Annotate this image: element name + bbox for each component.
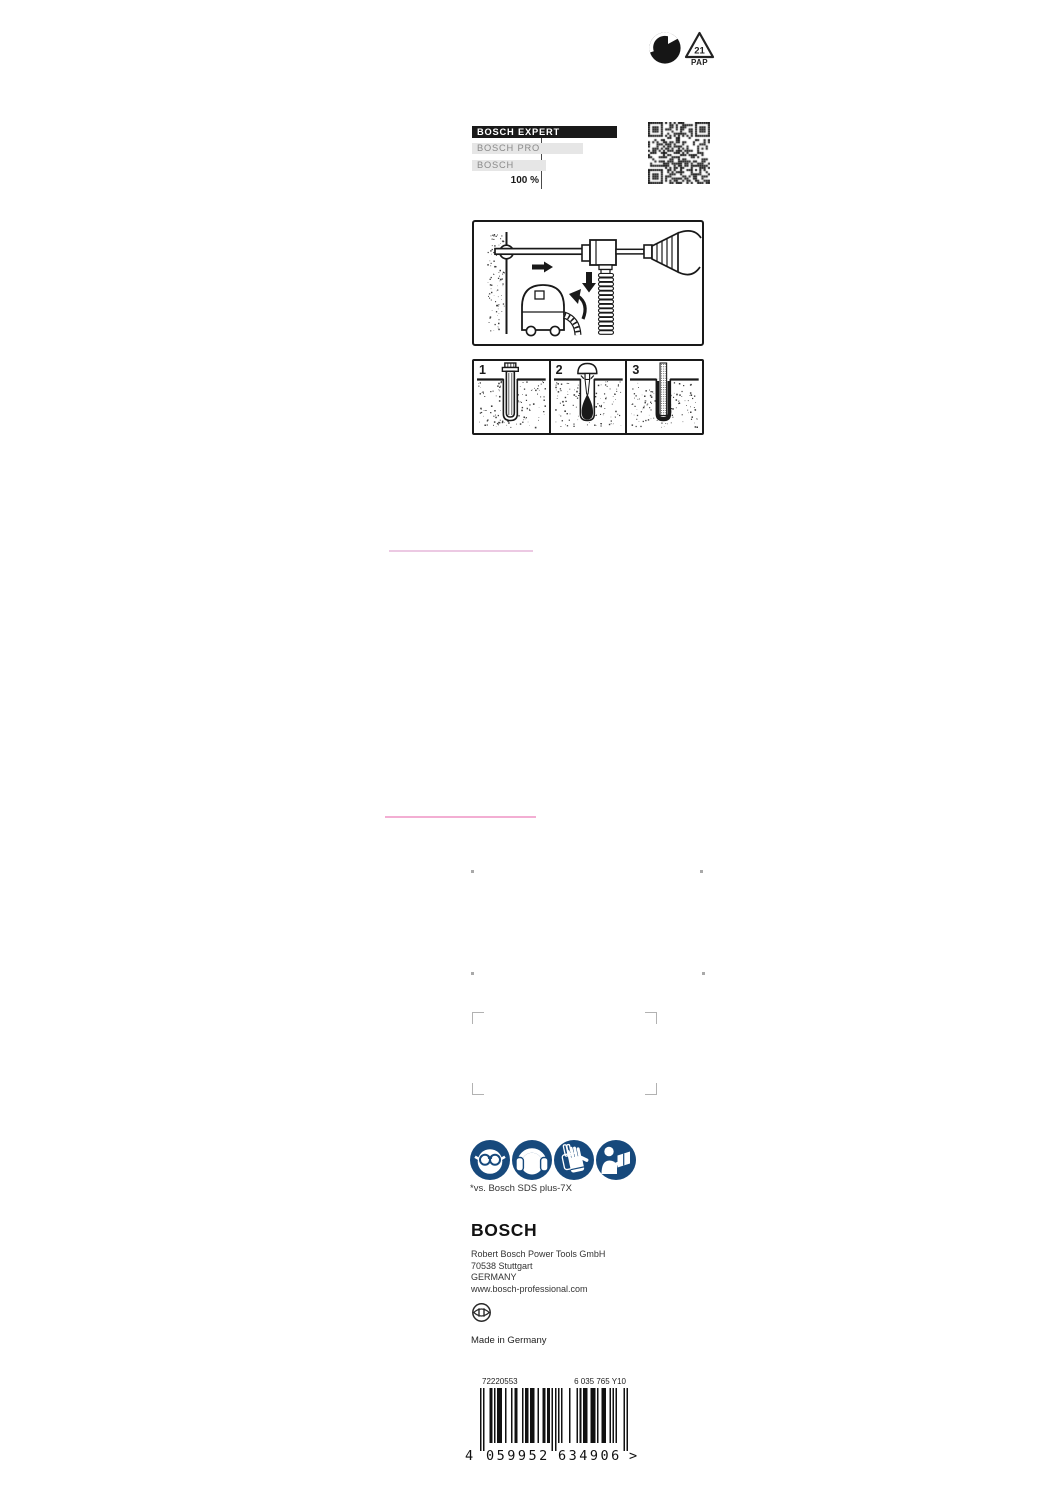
pap-21-recycling-icon: 21 PAP <box>683 30 716 67</box>
wear-ear-protection-icon <box>512 1140 552 1180</box>
step-number: 3 <box>632 363 639 377</box>
bosch-logo: BOSCH <box>471 1220 537 1241</box>
tier-bar-pro: BOSCH PRO <box>472 143 583 154</box>
anchor-bolt <box>506 371 514 417</box>
rotary-hammer-nose <box>652 233 678 272</box>
tier-bar-standard: BOSCH <box>472 160 546 171</box>
article-number: 72220553 <box>482 1377 518 1386</box>
die-cut-line-top <box>389 550 533 552</box>
green-dot-icon <box>648 31 682 65</box>
crop-mark-top-right <box>645 1012 657 1024</box>
ean-group2: 634906 <box>558 1448 622 1464</box>
extraction-adapter <box>590 240 616 265</box>
blow-out-pump <box>578 364 597 374</box>
installation-steps-panels: 1 2 <box>472 359 704 435</box>
step-panel-1: 1 <box>474 361 549 433</box>
step-panel-2: 2 <box>549 361 628 433</box>
extraction-hose <box>599 274 614 335</box>
address-line: GERMANY <box>471 1272 605 1284</box>
arrow-right-icon <box>532 262 553 273</box>
crop-mark-bottom-right <box>645 1083 657 1095</box>
pap-material-label: PAP <box>683 58 716 67</box>
tier-bar-expert: BOSCH EXPERT <box>472 126 617 138</box>
comparison-footnote: *vs. Bosch SDS plus-7X <box>470 1183 572 1194</box>
manufacturer-address: Robert Bosch Power Tools GmbH 70538 Stut… <box>471 1249 605 1295</box>
registration-dot <box>700 870 703 873</box>
registration-dot <box>702 972 705 975</box>
ean-suffix: > <box>629 1448 637 1464</box>
crop-mark-top-left <box>472 1012 484 1024</box>
registration-dot <box>471 972 474 975</box>
hollow-drill-bit <box>495 249 585 255</box>
qr-code <box>648 122 710 184</box>
step-number: 1 <box>479 363 486 377</box>
die-cut-line-bottom <box>385 816 536 818</box>
pap-number: 21 <box>694 46 705 57</box>
reference-percent-label: 100 % <box>472 175 539 186</box>
step-number: 2 <box>556 363 563 377</box>
dust-extraction-diagram <box>472 220 704 346</box>
address-line: Robert Bosch Power Tools GmbH <box>471 1249 605 1261</box>
made-in-label: Made in Germany <box>471 1335 547 1346</box>
address-line: www.bosch-professional.com <box>471 1284 605 1296</box>
safety-icons-row <box>470 1140 636 1180</box>
registration-dot <box>471 870 474 873</box>
ean-group1: 059952 <box>486 1448 548 1464</box>
ean-13-barcode <box>480 1388 628 1451</box>
step-panel-3: 3 <box>627 361 702 433</box>
performance-comparison-chart: BOSCH EXPERT BOSCH PRO BOSCH 100 % <box>472 126 647 190</box>
read-manual-icon <box>596 1140 636 1180</box>
bosch-emblem-icon <box>471 1302 492 1323</box>
threaded-rod <box>660 363 667 416</box>
address-line: 70538 Stuttgart <box>471 1261 605 1273</box>
arrow-down-icon <box>582 272 596 293</box>
crop-mark-bottom-left <box>472 1083 484 1095</box>
wear-gloves-icon <box>554 1140 594 1180</box>
type-number: 6 035 765 Y10 <box>553 1377 626 1386</box>
wear-eye-protection-icon <box>470 1140 510 1180</box>
packaging-back-panel: 21 PAP BOSCH EXPERT BOSCH PRO BOSCH 100 … <box>0 0 1060 1500</box>
ean-lead-digit: 4 <box>465 1448 473 1464</box>
arrow-curved-icon <box>578 296 585 319</box>
